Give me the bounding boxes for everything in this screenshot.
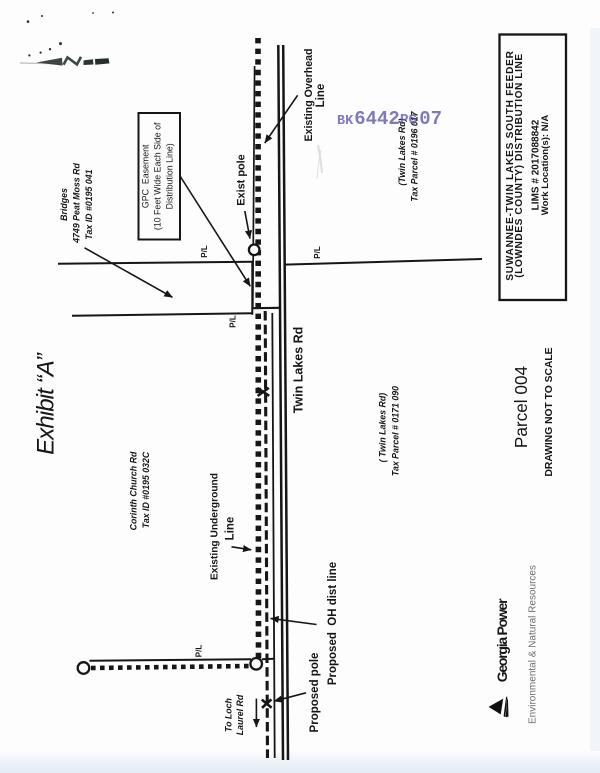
svg-text:Exist pole: Exist pole (236, 154, 248, 205)
svg-text:DRAWING NOT TO SCALE: DRAWING NOT TO SCALE (544, 347, 555, 476)
svg-text:(LOWNDES COUNTY) DISTRIBUTION: (LOWNDES COUNTY) DISTRIBUTION LINE (514, 53, 525, 278)
svg-text:4749 Peat Moss Rd: 4749 Peat Moss Rd (72, 163, 82, 244)
svg-text:Laurel Rd: Laurel Rd (235, 694, 245, 735)
svg-text:Line: Line (315, 84, 327, 108)
svg-text:To Loch: To Loch (224, 698, 234, 732)
svg-text:Existing Underground: Existing Underground (210, 473, 221, 580)
svg-text:P/L: P/L (229, 315, 238, 328)
svg-text:Georgia Power: Georgia Power (494, 598, 510, 682)
svg-text:Environmental & Natural Resour: Environmental & Natural Resources (528, 565, 539, 724)
svg-text:Existing Overhead: Existing Overhead (303, 48, 315, 141)
svg-text:Proposed OH dist line: Proposed OH dist line (327, 562, 339, 685)
svg-text:Tax Parcel # 0171 090: Tax Parcel # 0171 090 (391, 386, 401, 476)
svg-text:Exhibit “A”: Exhibit “A” (32, 352, 59, 455)
svg-text:Bridges: Bridges (59, 188, 69, 221)
svg-text:( Twin Lakes Rd): ( Twin Lakes Rd) (378, 393, 388, 463)
svg-text:Work Location(s): N/A: Work Location(s): N/A (540, 115, 551, 216)
svg-text:Tax ID #0195 041: Tax ID #0195 041 (84, 169, 94, 239)
svg-text:Corinth Church Rd: Corinth Church Rd (129, 451, 139, 530)
svg-text:Line: Line (225, 517, 237, 541)
svg-text:Proposed pole: Proposed pole (309, 653, 321, 733)
svg-text:Distribution Line): Distribution Line) (165, 143, 175, 209)
svg-text:P/L: P/L (313, 246, 322, 259)
svg-text:Twin Lakes Rd: Twin Lakes Rd (292, 327, 306, 414)
svg-text:Tax ID #0195 032C: Tax ID #0195 032C (141, 451, 151, 528)
svg-text:P/L: P/L (200, 245, 209, 258)
svg-text:P/L: P/L (195, 645, 204, 658)
svg-text:GPC Easement: GPC Easement (141, 144, 151, 208)
svg-text:Parcel 004: Parcel 004 (511, 365, 531, 448)
svg-text:(10 Feet Wide Each Side of: (10 Feet Wide Each Side of (153, 122, 163, 230)
